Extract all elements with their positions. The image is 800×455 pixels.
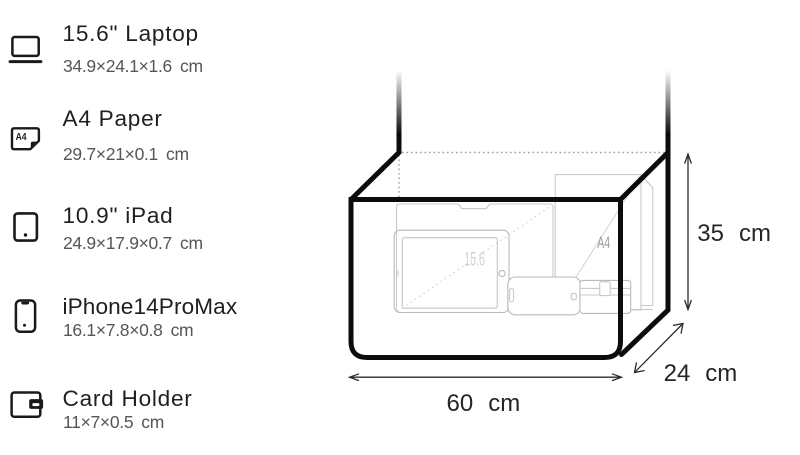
- svg-text:A4: A4: [597, 233, 610, 252]
- svg-text:15.6: 15.6: [464, 250, 485, 271]
